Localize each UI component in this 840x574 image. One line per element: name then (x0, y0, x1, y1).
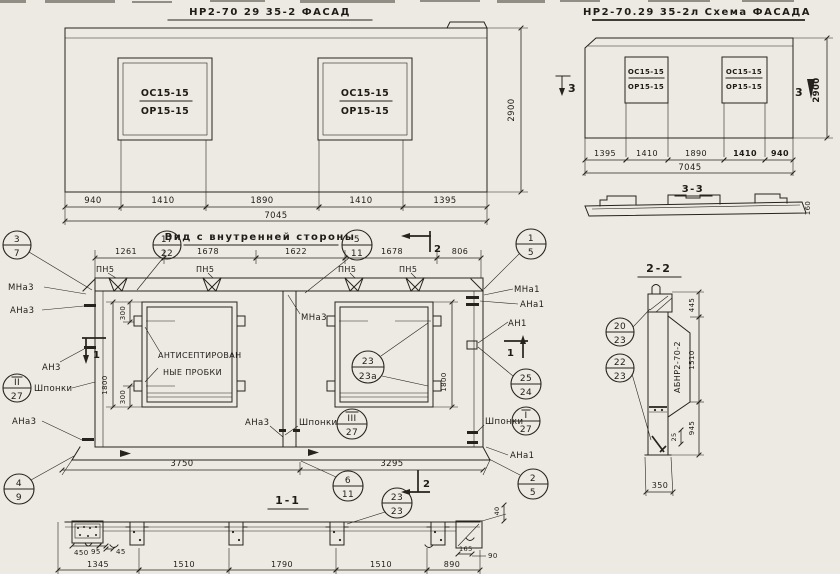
label-keys-left: Шпонки (34, 384, 72, 394)
balloon-III-27: III 27 (337, 409, 367, 439)
dim-1510b: 1510 (370, 560, 392, 569)
label-keys-mid: Шпонки (299, 418, 337, 428)
facade-window-2: ОС15-15 ОР15-15 (318, 58, 412, 140)
svg-text:23: 23 (614, 336, 626, 346)
schema-section-mark-right: 3 2900 (793, 38, 833, 138)
section-arrow-1-left: 1 (82, 338, 106, 364)
svg-text:27: 27 (346, 428, 358, 438)
direction-arrow (308, 449, 319, 456)
dim-3750: 3750 (170, 459, 193, 469)
svg-text:11: 11 (351, 249, 363, 259)
section-1-label: 1 (507, 348, 515, 359)
window-mark-top: ОС15-15 (141, 88, 189, 99)
plug-tab (134, 381, 142, 391)
panel-mark-abnr: АБНР2-70-2 (673, 341, 682, 393)
facade-schema-view: НР2-70.29 35-2л Схема ФАСАДА ОС15-15 ОР1… (556, 7, 833, 216)
svg-text:11: 11 (342, 490, 354, 500)
balloon-I-27: I 27 (512, 407, 540, 435)
svg-text:22: 22 (614, 358, 626, 368)
section-3-3-rib-3 (755, 194, 787, 203)
label-ana1-bottom: АНа1 (510, 451, 534, 461)
dim-1261: 1261 (115, 247, 137, 256)
label-an3: АН3 (42, 363, 61, 373)
dim-1410: 1410 (636, 149, 658, 158)
dim-thickness-160: 160 (804, 201, 812, 216)
inner-window-right (327, 302, 441, 407)
section-2-2-shape: АБНР2-70-2 (645, 285, 690, 456)
balloon-20-23: 20 23 (606, 309, 650, 346)
label-ana3-bottom: АНа3 (12, 417, 36, 427)
rib-1 (126, 522, 148, 545)
svg-text:3: 3 (14, 235, 20, 245)
dim-450: 450 (74, 549, 89, 557)
facade-top-tab (447, 22, 487, 28)
inner-view-title: Вид с внутренней стороны (165, 232, 356, 243)
schema-title: НР2-70.29 35-2л Схема ФАСАДА (583, 7, 811, 18)
schema-window-2: ОС15-15 ОР15-15 (722, 57, 767, 103)
svg-text:5: 5 (354, 235, 360, 245)
label-ana3: АНа3 (10, 306, 34, 316)
plug-tab (327, 381, 335, 391)
balloon-22-23: 22 23 (606, 354, 651, 440)
plug-tab (433, 316, 441, 326)
section-arrow-2-top: 2 (401, 231, 442, 255)
facade-panel-outline (65, 22, 487, 192)
plug-note-line1: АНТИСЕПТИРОВАН (158, 351, 242, 360)
dim-45: 45 (116, 548, 126, 556)
dim-1345: 1345 (87, 560, 109, 569)
dim-940: 940 (771, 149, 789, 158)
rib-4 (427, 522, 449, 545)
section-2-2-dims: 445 1510 945 25 350 (645, 292, 704, 496)
section-3-3: 3-3 160 (585, 184, 812, 216)
dim-1890: 1890 (250, 196, 273, 206)
dim-1790: 1790 (271, 560, 293, 569)
balloon-II-27: II 27 (3, 374, 31, 402)
dim-890: 890 (444, 560, 460, 569)
svg-text:5: 5 (530, 488, 536, 498)
dim-1800-left: 1800 (101, 375, 109, 394)
inner-vertical-dims: 300 300 1800 1800 (101, 302, 458, 407)
dim-165: 165 (459, 545, 473, 553)
svg-text:5: 5 (528, 248, 534, 258)
rib-3 (326, 522, 348, 545)
section-3-3-slab (585, 202, 806, 216)
label-mna3-mid: МНа3 (301, 313, 327, 323)
section-1-1-title: 1-1 (275, 494, 301, 507)
inner-bottom-flange (72, 447, 490, 460)
svg-text:1: 1 (528, 234, 534, 244)
section-3-label: 3 (795, 86, 805, 99)
svg-text:20: 20 (614, 322, 626, 332)
svg-text:23: 23 (391, 507, 403, 517)
svg-text:23: 23 (362, 357, 374, 367)
svg-text:23: 23 (614, 372, 626, 382)
dim-1622: 1622 (285, 247, 307, 256)
dim-3295: 3295 (380, 459, 403, 469)
balloon-3-7: 3 7 (3, 231, 92, 290)
section-1-1-strip (65, 521, 482, 548)
facade-height-dim: 2900 (487, 28, 528, 192)
section-1-label: 1 (93, 350, 101, 361)
dim-1510: 1510 (688, 350, 696, 369)
dim-1510a: 1510 (173, 560, 195, 569)
balloon-2-5: 2 5 (489, 459, 548, 499)
inner-labels-right: МНа1 АНа1 АН1 1 Шпонки АНа1 (476, 285, 544, 461)
section-3-3-title: 3-3 (682, 184, 705, 195)
section-2-label: 2 (423, 479, 431, 490)
facade-view: НР2-70 29 35-2 ФАСАД ОС15-15 ОР15-15 ОС1… (65, 7, 528, 225)
dim-445: 445 (688, 298, 696, 313)
svg-text:27: 27 (520, 425, 532, 435)
dim-height-2900: 2900 (507, 98, 517, 121)
dim-300-bottom: 300 (119, 390, 127, 405)
dim-945: 945 (688, 421, 696, 436)
balloon-23-23: 23 23 (347, 488, 412, 524)
svg-text:22: 22 (161, 249, 173, 259)
svg-text:9: 9 (16, 493, 22, 503)
section-arrow-1-right: 1 (504, 335, 528, 359)
inner-top-dims: 1261 1678 1622 1678 806 (95, 247, 481, 278)
direction-arrow (120, 450, 131, 457)
section-3-3-rib-1 (600, 196, 636, 206)
section-3-label: 3 (568, 82, 578, 95)
svg-text:27: 27 (11, 392, 23, 402)
dim-total-7045: 7045 (264, 211, 287, 221)
dim-height-2900: 2900 (812, 77, 822, 102)
label-ana1: АНа1 (520, 300, 544, 310)
label-mna1: МНа1 (514, 285, 540, 295)
balloon-1-5: 1 5 (484, 229, 546, 289)
svg-text:25: 25 (520, 374, 532, 384)
section-1-1-dims: 450 95 45 1345 1510 1790 1510 890 165 90… (58, 505, 506, 574)
schema-dim-row: 1395 1410 1890 1410 940 (585, 149, 793, 160)
schema-window-1: ОС15-15 ОР15-15 (625, 57, 668, 103)
window-mark-bottom: ОР15-15 (341, 106, 389, 117)
loop-label-pn5: ПН5 (399, 265, 417, 274)
balloon-4-9: 4 9 (4, 456, 74, 504)
inner-labels-mid: МНа3 АНа3 Шпонки (245, 295, 337, 437)
window-mark-top: ОС15-15 (628, 68, 664, 76)
section-2-2: 2-2 АБНР2-70-2 20 23 22 23 44 (606, 262, 704, 496)
loop-label-pn5: ПН5 (338, 265, 356, 274)
svg-text:III: III (347, 414, 356, 424)
scan-artifacts (0, 0, 794, 3)
label-ana3-mid: АНа3 (245, 418, 269, 428)
plug-tab (237, 316, 245, 326)
dim-total-7045: 7045 (678, 163, 701, 173)
svg-text:24: 24 (520, 388, 532, 398)
dim-1410b: 1410 (733, 149, 757, 158)
plug-tab (327, 316, 335, 326)
inner-panel-outline (83, 278, 483, 447)
plug-note-line2: НЫЕ ПРОБКИ (163, 368, 222, 377)
label-keys-right: Шпонки (485, 417, 523, 427)
section-1-1: 1-1 (58, 488, 506, 574)
dim-1800-right: 1800 (440, 372, 448, 391)
blueprint-sheet: НР2-70 29 35-2 ФАСАД ОС15-15 ОР15-15 ОС1… (0, 0, 840, 574)
rib-2 (225, 522, 247, 545)
facade-total-row: 7045 (65, 211, 487, 221)
svg-text:23: 23 (391, 493, 403, 503)
dim-90: 90 (488, 552, 498, 560)
svg-text:4: 4 (16, 479, 22, 489)
dim-25: 25 (670, 432, 678, 441)
label-an1: АН1 (508, 319, 527, 329)
window-mark-bottom: ОР15-15 (726, 83, 762, 91)
loop-label-pn5: ПН5 (196, 265, 214, 274)
section-2-label: 2 (434, 244, 442, 255)
dim-95: 95 (91, 548, 101, 556)
facade-dim-row: 940 1410 1890 1410 1395 (65, 196, 487, 207)
window-mark-bottom: ОР15-15 (141, 106, 189, 117)
window-mark-bottom: ОР15-15 (628, 83, 664, 91)
svg-text:2: 2 (530, 474, 536, 484)
plug-tab (134, 316, 142, 326)
dim-1395: 1395 (433, 196, 456, 206)
window-mark-top: ОС15-15 (726, 68, 762, 76)
dim-1410b: 1410 (349, 196, 372, 206)
schema-section-mark-left: 3 (556, 76, 578, 96)
dim-1890: 1890 (685, 149, 707, 158)
dim-1395: 1395 (594, 149, 616, 158)
dim-350: 350 (652, 481, 668, 490)
dim-1678: 1678 (197, 247, 219, 256)
facade-title: НР2-70 29 35-2 ФАСАД (189, 7, 351, 18)
inner-view: Вид с внутренней стороны 1261 1678 1622 … (3, 229, 548, 504)
schema-total-row: 7045 (585, 163, 793, 173)
section-2-2-title: 2-2 (646, 262, 672, 275)
dim-40: 40 (493, 506, 501, 515)
svg-text:23а: 23а (359, 372, 377, 382)
svg-text:I: I (524, 411, 527, 421)
svg-text:II: II (14, 378, 20, 388)
dim-300-top: 300 (119, 306, 127, 321)
svg-text:17: 17 (161, 235, 173, 245)
inner-window-left: АНТИСЕПТИРОВАН НЫЕ ПРОБКИ (134, 302, 245, 407)
plug-tab (237, 381, 245, 391)
dim-1678b: 1678 (381, 247, 403, 256)
balloon-23-23a: 23 23а (352, 351, 384, 383)
svg-text:6: 6 (345, 476, 351, 486)
label-mna3: МНа3 (8, 283, 34, 293)
balloon-6-11: 6 11 (301, 461, 363, 501)
panel-drawing-svg: НР2-70 29 35-2 ФАСАД ОС15-15 ОР15-15 ОС1… (0, 0, 840, 574)
inner-bottom-dims: 3750 3295 (62, 459, 490, 475)
window-mark-top: ОС15-15 (341, 88, 389, 99)
dim-1410: 1410 (151, 196, 174, 206)
loop-label-pn5: ПН5 (96, 265, 114, 274)
dim-940: 940 (84, 196, 101, 206)
dim-806: 806 (452, 247, 468, 256)
svg-text:7: 7 (14, 249, 20, 259)
facade-window-1: ОС15-15 ОР15-15 (118, 58, 212, 140)
